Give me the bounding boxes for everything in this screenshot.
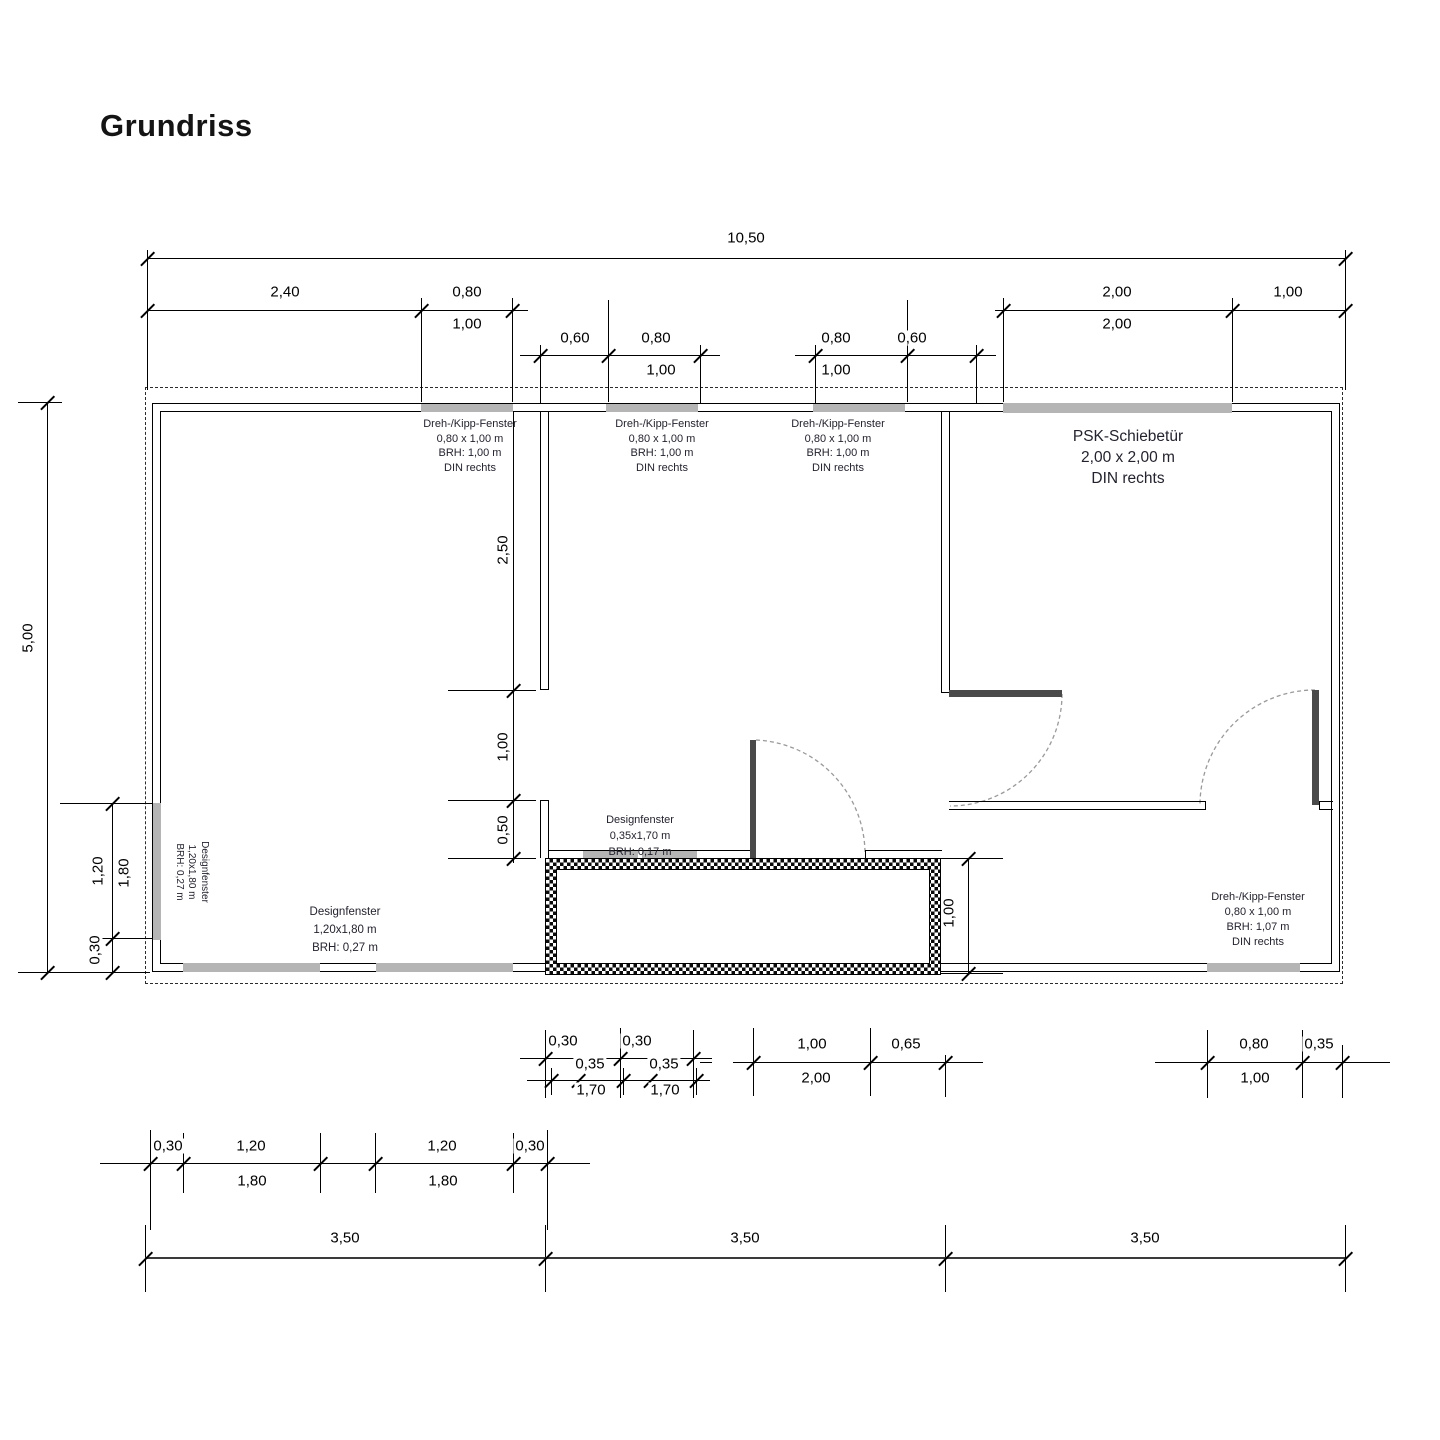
annotation-line: DIN rechts <box>615 461 709 476</box>
door-leaf <box>949 690 1062 697</box>
annotation-line: 0,80 x 1,00 m <box>423 432 517 447</box>
dim-label: 1,00 <box>450 317 483 332</box>
plan-line <box>907 300 908 402</box>
dim-label: 1,00 <box>1238 1071 1271 1086</box>
dim-label: 1,20 <box>425 1139 458 1154</box>
plan-line <box>693 1030 694 1098</box>
annotation-psk-sliding-door: PSK-Schiebetür2,00 x 2,00 mDIN rechts <box>1073 426 1183 489</box>
annotation-line: 0,35x1,70 m <box>606 828 674 844</box>
plan-line <box>18 402 62 403</box>
dim-label: 2,00 <box>1100 285 1133 300</box>
plan-line <box>540 800 541 858</box>
window-strip <box>421 404 513 412</box>
annotation-window-top-left: Dreh-/Kipp-Fenster0,80 x 1,00 mBRH: 1,00… <box>423 417 517 475</box>
dim-label: 10,50 <box>725 231 767 246</box>
dim-label: 1,20 <box>91 854 106 887</box>
dim-label: 3,50 <box>1128 1231 1161 1246</box>
dim-label: 0,30 <box>513 1139 546 1154</box>
plan-line <box>941 411 942 693</box>
plan-line <box>513 411 514 863</box>
plan-line <box>865 850 942 851</box>
annotation-line: BRH: 0,27 m <box>172 841 185 903</box>
plan-line <box>527 1080 710 1081</box>
plan-line <box>949 411 950 693</box>
dim-label: 0,60 <box>558 331 591 346</box>
plan-line <box>147 310 528 311</box>
dim-label: 1,00 <box>819 363 852 378</box>
plan-line <box>520 1058 712 1059</box>
plan-line <box>448 858 536 859</box>
plan-line <box>520 355 720 356</box>
plan-line <box>1319 809 1333 810</box>
plan-line <box>949 809 1206 810</box>
dim-label: 3,50 <box>328 1231 361 1246</box>
annotation-window-bottom-right: Dreh-/Kipp-Fenster0,80 x 1,00 mBRH: 1,07… <box>1211 890 1305 950</box>
annotation-line: 0,80 x 1,00 m <box>791 432 885 447</box>
dim-label: 1,80 <box>117 856 132 889</box>
dim-label: 0,80 <box>450 285 483 300</box>
plan-line <box>540 411 541 690</box>
annotation-line: BRH: 0,27 m <box>310 939 381 957</box>
window-strip <box>183 963 320 972</box>
annotation-line: BRH: 0,17 m <box>606 844 674 860</box>
dim-label: 2,00 <box>1100 317 1133 332</box>
dim-label: 0,30 <box>151 1139 184 1154</box>
window-strip <box>813 404 905 412</box>
annotation-line: Designfenster <box>310 903 381 921</box>
plan-line <box>47 402 48 972</box>
plan-line <box>112 803 113 972</box>
annotation-design-window-bottom-left: Designfenster1,20x1,80 mBRH: 0,27 m <box>310 903 381 957</box>
plan-line <box>865 850 866 859</box>
annotation-design-window-middle: Designfenster0,35x1,70 mBRH: 0,17 m <box>606 812 674 860</box>
plan-line <box>18 972 150 973</box>
dim-label: 1,00 <box>496 730 511 763</box>
door-leaf <box>1312 690 1319 805</box>
plan-line <box>512 298 513 402</box>
annotation-line: BRH: 1,07 m <box>1211 920 1305 935</box>
dim-label: 1,00 <box>795 1037 828 1052</box>
plan-line <box>547 1130 548 1230</box>
dim-label: 1,80 <box>426 1174 459 1189</box>
annotation-line: 2,00 x 2,00 m <box>1073 447 1183 468</box>
floor-plan-page: Grundriss 10,502,400,801,002,001,002,000… <box>0 0 1440 1440</box>
door-leaf <box>750 740 756 858</box>
annotation-line: Dreh-/Kipp-Fenster <box>791 417 885 432</box>
plan-line <box>540 800 549 801</box>
plan-line <box>968 858 969 973</box>
dim-label: 1,80 <box>235 1174 268 1189</box>
annotation-line: Dreh-/Kipp-Fenster <box>423 417 517 432</box>
window-strip <box>153 803 161 940</box>
dim-label: 0,60 <box>895 331 928 346</box>
annotation-line: DIN rechts <box>1073 468 1183 489</box>
plan-line <box>1003 298 1004 402</box>
plan-line <box>795 355 996 356</box>
annotation-line: BRH: 1,00 m <box>615 446 709 461</box>
dim-label: 0,30 <box>620 1034 653 1049</box>
window-strip <box>1207 963 1300 972</box>
annotation-line: Designfenster <box>197 841 210 903</box>
plan-line <box>941 973 1003 974</box>
annotation-window-top-mid: Dreh-/Kipp-Fenster0,80 x 1,00 mBRH: 1,00… <box>615 417 709 475</box>
annotation-line: Designfenster <box>606 812 674 828</box>
annotation-line: BRH: 1,00 m <box>791 446 885 461</box>
plan-line <box>1342 1045 1343 1098</box>
dim-label: 5,00 <box>21 621 36 654</box>
plan-line <box>995 310 1345 311</box>
annotation-line: 1,20x1,80 m <box>310 921 381 939</box>
dim-label: 0,80 <box>819 331 852 346</box>
dim-label: 2,40 <box>268 285 301 300</box>
dim-label: 1,70 <box>574 1083 607 1098</box>
plan-line <box>421 298 422 402</box>
dim-label: 2,00 <box>799 1071 832 1086</box>
plan-line <box>1232 298 1233 402</box>
annotation-line: Dreh-/Kipp-Fenster <box>615 417 709 432</box>
dim-label: 1,70 <box>648 1083 681 1098</box>
dim-label: 0,65 <box>889 1037 922 1052</box>
plan-line <box>1205 801 1206 810</box>
annotation-line: PSK-Schiebetür <box>1073 426 1183 447</box>
annotation-line: 0,80 x 1,00 m <box>615 432 709 447</box>
plan-line <box>608 300 609 402</box>
plan-line <box>1345 250 1346 390</box>
plan-line <box>95 938 152 939</box>
annotation-line: BRH: 1,00 m <box>423 446 517 461</box>
plan-line <box>448 800 536 801</box>
dim-label: 0,80 <box>1237 1037 1270 1052</box>
annotation-line: 0,80 x 1,00 m <box>1211 905 1305 920</box>
plan-line <box>548 411 549 690</box>
plan-line <box>60 803 152 804</box>
plan-line <box>865 858 942 859</box>
window-strip <box>1003 403 1232 413</box>
plan-line <box>941 858 1003 859</box>
annotation-line: 1,20x1,80 m <box>185 841 198 903</box>
annotation-window-top-right: Dreh-/Kipp-Fenster0,80 x 1,00 mBRH: 1,00… <box>791 417 885 475</box>
plan-line <box>147 258 1345 259</box>
dim-label: 0,30 <box>88 933 103 966</box>
plan-line <box>700 1062 712 1063</box>
plan-line <box>949 801 1206 802</box>
dim-label: 0,35 <box>573 1057 606 1072</box>
dim-label: 3,50 <box>728 1231 761 1246</box>
plan-line <box>147 250 148 390</box>
plan-line <box>145 1257 1345 1259</box>
dim-label: 0,35 <box>647 1057 680 1072</box>
dim-label: 1,00 <box>1271 285 1304 300</box>
annotation-line: DIN rechts <box>423 461 517 476</box>
hatched-wall-box-interior <box>556 869 930 964</box>
annotation-line: Dreh-/Kipp-Fenster <box>1211 890 1305 905</box>
window-strip <box>606 404 698 412</box>
dim-label: 1,20 <box>234 1139 267 1154</box>
dim-label: 0,35 <box>1302 1037 1335 1052</box>
dim-label: 1,00 <box>644 363 677 378</box>
dim-label: 2,50 <box>496 533 511 566</box>
plan-line <box>1319 801 1320 810</box>
annotation-line: DIN rechts <box>791 461 885 476</box>
plan-line <box>1155 1062 1390 1063</box>
page-title: Grundriss <box>100 108 253 144</box>
plan-line <box>1319 801 1333 802</box>
annotation-line: DIN rechts <box>1211 935 1305 950</box>
dim-label: 0,80 <box>639 331 672 346</box>
annotation-design-window-left: Designfenster1,20x1,80 mBRH: 0,27 m <box>172 841 210 903</box>
window-strip <box>376 963 513 972</box>
dim-label: 1,00 <box>942 896 957 929</box>
plan-line <box>448 690 536 691</box>
plan-line <box>540 689 549 690</box>
dim-label: 0,30 <box>546 1034 579 1049</box>
dim-label: 0,50 <box>496 813 511 846</box>
plan-line <box>100 1163 590 1164</box>
